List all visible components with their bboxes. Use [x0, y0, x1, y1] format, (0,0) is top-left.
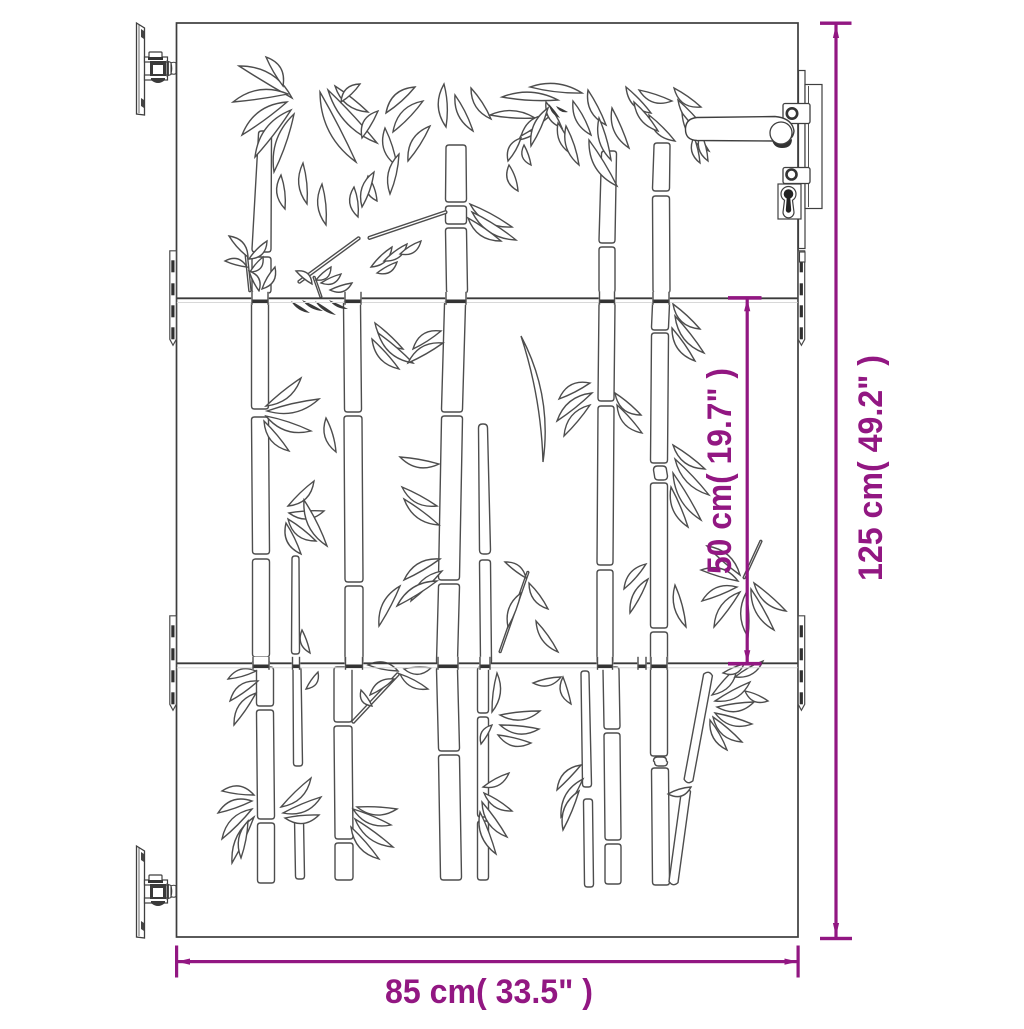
svg-text:50 cm( 19.7" ): 50 cm( 19.7" )	[701, 368, 739, 574]
svg-text:125 cm( 49.2" ): 125 cm( 49.2" )	[852, 355, 890, 581]
svg-text:85 cm( 33.5" ): 85 cm( 33.5" )	[385, 973, 593, 1011]
